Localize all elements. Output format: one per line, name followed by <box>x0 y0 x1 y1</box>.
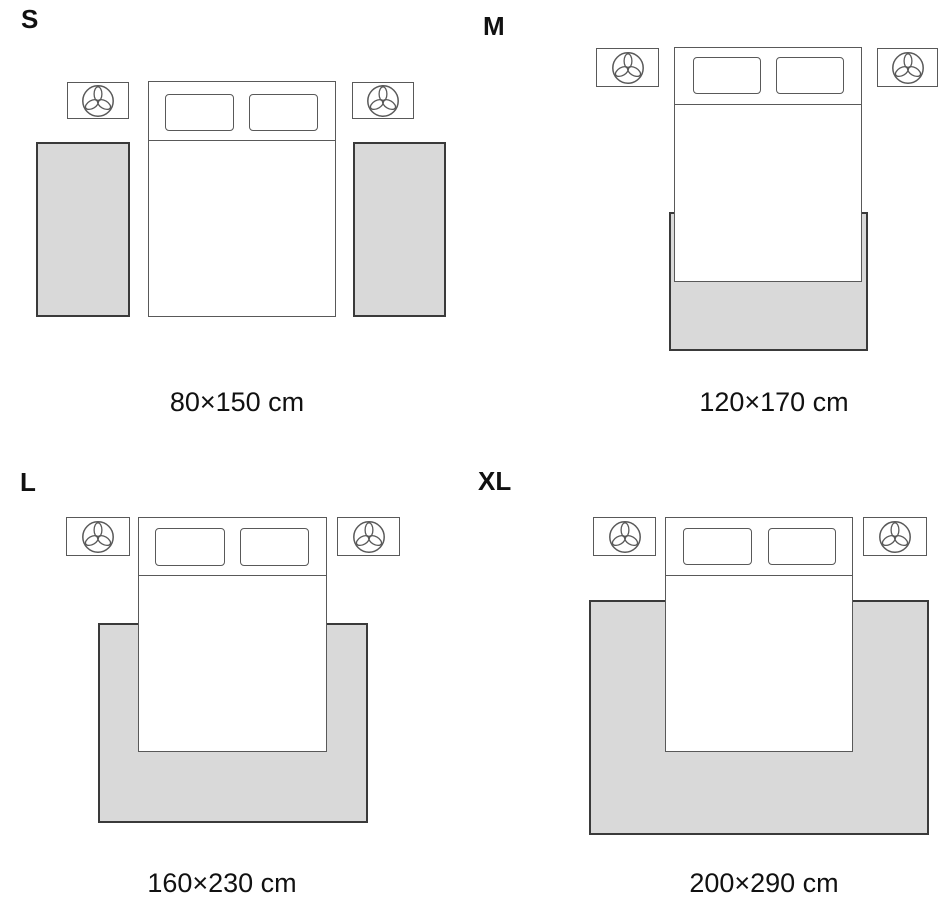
nightstand-right <box>352 82 414 119</box>
size-dimensions-label: 200×290 cm <box>564 868 950 899</box>
nightstand-left <box>593 517 656 556</box>
plant-icon <box>611 51 645 85</box>
pillow-left <box>683 528 752 565</box>
nightstand-left <box>66 517 130 556</box>
rug-right-runner <box>353 142 446 317</box>
pillow-right <box>768 528 836 565</box>
nightstand-left <box>596 48 659 87</box>
pillow-right <box>249 94 318 131</box>
size-dimensions-label: 120×170 cm <box>574 387 950 418</box>
nightstand-right <box>877 48 938 87</box>
nightstand-right <box>337 517 400 556</box>
plant-icon <box>81 520 115 554</box>
size-option-m: M 120×170 cm <box>475 0 950 450</box>
bed <box>148 81 336 317</box>
headboard-divider <box>675 104 861 105</box>
plant-icon <box>366 84 400 118</box>
plant-icon <box>352 520 386 554</box>
pillow-right <box>240 528 309 566</box>
pillow-left <box>165 94 234 131</box>
pillow-left <box>693 57 761 94</box>
plant-icon <box>878 520 912 554</box>
size-option-xl: XL 200×290 cm <box>475 450 950 900</box>
size-dimensions-label: 80×150 cm <box>37 387 437 418</box>
headboard-divider <box>139 575 326 576</box>
size-option-l: L 160×230 cm <box>0 450 475 900</box>
nightstand-right <box>863 517 927 556</box>
size-letter: M <box>483 12 505 41</box>
bed <box>138 517 327 752</box>
rug-left-runner <box>36 142 130 317</box>
size-letter: L <box>20 468 36 497</box>
pillow-left <box>155 528 225 566</box>
size-dimensions-label: 160×230 cm <box>22 868 422 899</box>
pillow-right <box>776 57 844 94</box>
plant-icon <box>891 51 925 85</box>
headboard-divider <box>666 575 852 576</box>
nightstand-left <box>67 82 129 119</box>
plant-icon <box>81 84 115 118</box>
headboard-divider <box>149 140 335 141</box>
size-letter: XL <box>478 467 511 496</box>
bed <box>665 517 853 752</box>
size-letter: S <box>21 5 38 34</box>
plant-icon <box>608 520 642 554</box>
size-option-s: S 80×150 cm <box>0 0 475 450</box>
bed <box>674 47 862 282</box>
